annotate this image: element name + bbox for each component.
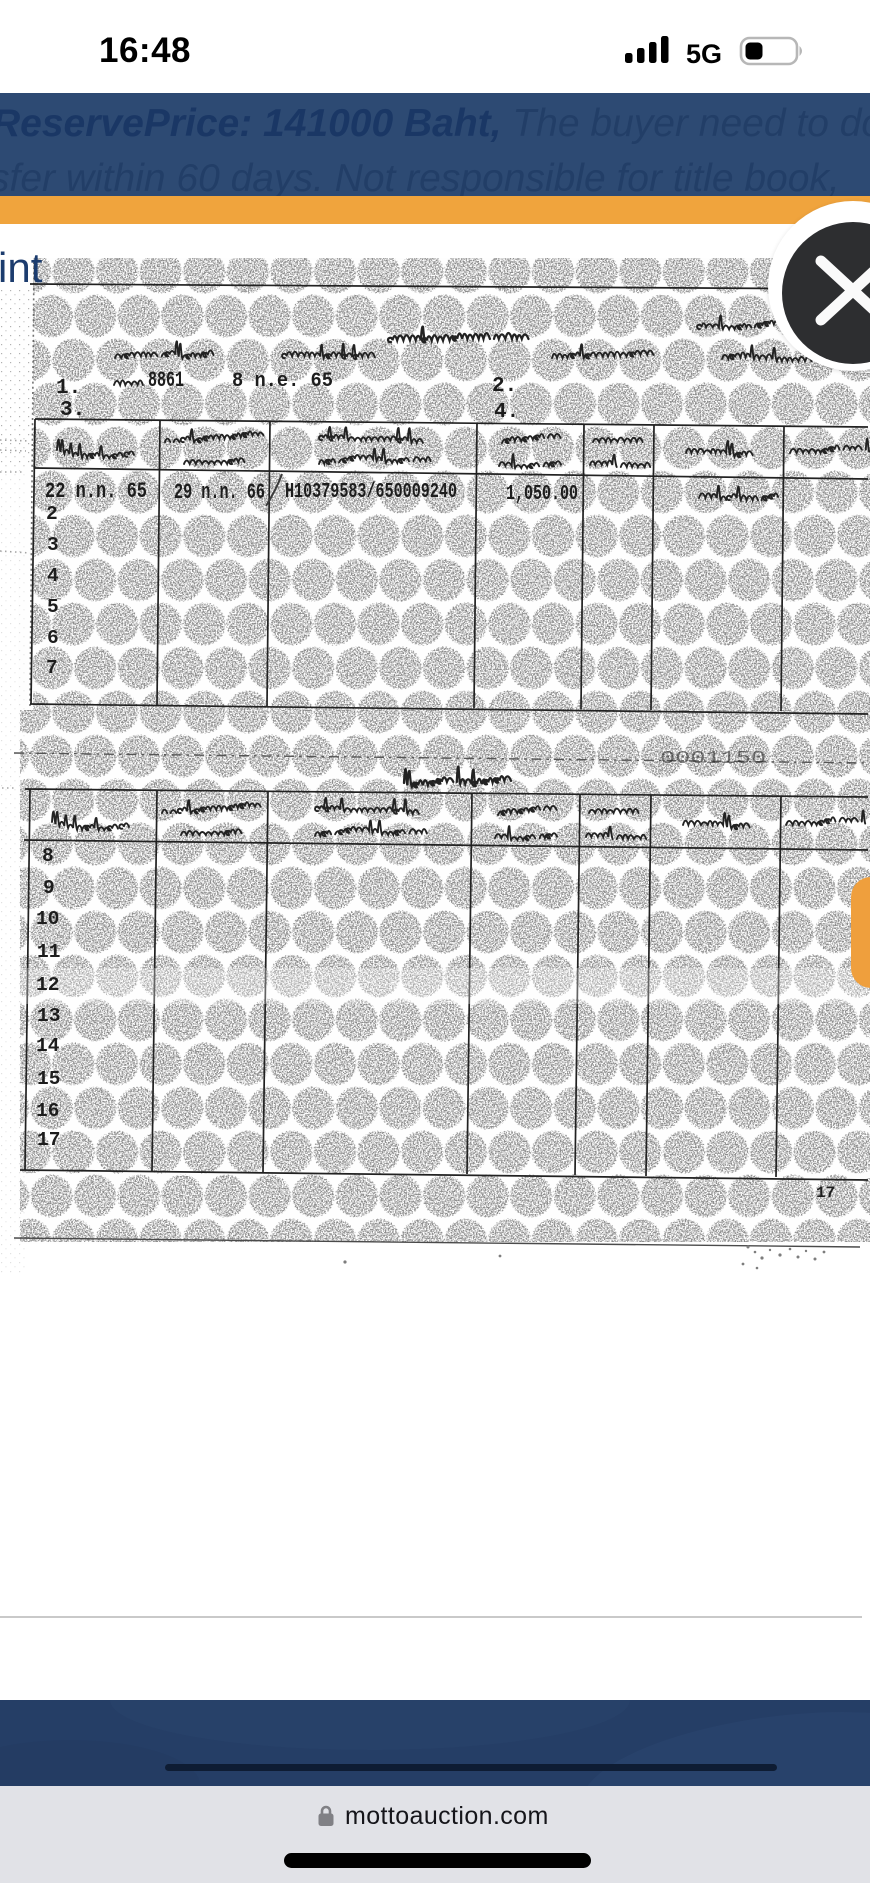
svg-text:4.: 4. [494, 401, 519, 424]
svg-text:29 n.n. 66: 29 n.n. 66 [174, 479, 265, 505]
svg-text:17: 17 [816, 1184, 835, 1202]
svg-text:11: 11 [37, 941, 60, 963]
svg-text:8 n.e. 65: 8 n.e. 65 [232, 370, 333, 393]
svg-text:8: 8 [42, 845, 54, 867]
svg-text:6: 6 [47, 627, 59, 649]
svg-text:10: 10 [36, 908, 59, 930]
svg-text:15: 15 [37, 1068, 60, 1090]
svg-text:14: 14 [36, 1035, 60, 1057]
svg-text:13: 13 [37, 1005, 60, 1027]
svg-text:16: 16 [36, 1100, 59, 1122]
svg-text:17: 17 [37, 1129, 60, 1151]
svg-text:5G: 5G [686, 39, 722, 69]
svg-text:12: 12 [36, 974, 59, 996]
svg-text:2.: 2. [492, 375, 517, 398]
svg-text:1.: 1. [56, 377, 81, 400]
svg-text:1,050.00: 1,050.00 [506, 483, 578, 506]
svg-text:22 n.n. 65: 22 n.n. 65 [45, 478, 147, 504]
svg-text:5: 5 [47, 596, 59, 618]
svg-text:H10379583/650009240: H10379583/650009240 [285, 481, 457, 504]
svg-text:8861: 8861 [148, 368, 184, 393]
svg-text:7: 7 [46, 657, 58, 679]
svg-text:3: 3 [47, 534, 59, 556]
svg-text:4: 4 [47, 565, 59, 587]
svg-text:9: 9 [43, 877, 55, 899]
svg-text:0001150: 0001150 [660, 749, 766, 769]
svg-text:2: 2 [46, 503, 58, 525]
